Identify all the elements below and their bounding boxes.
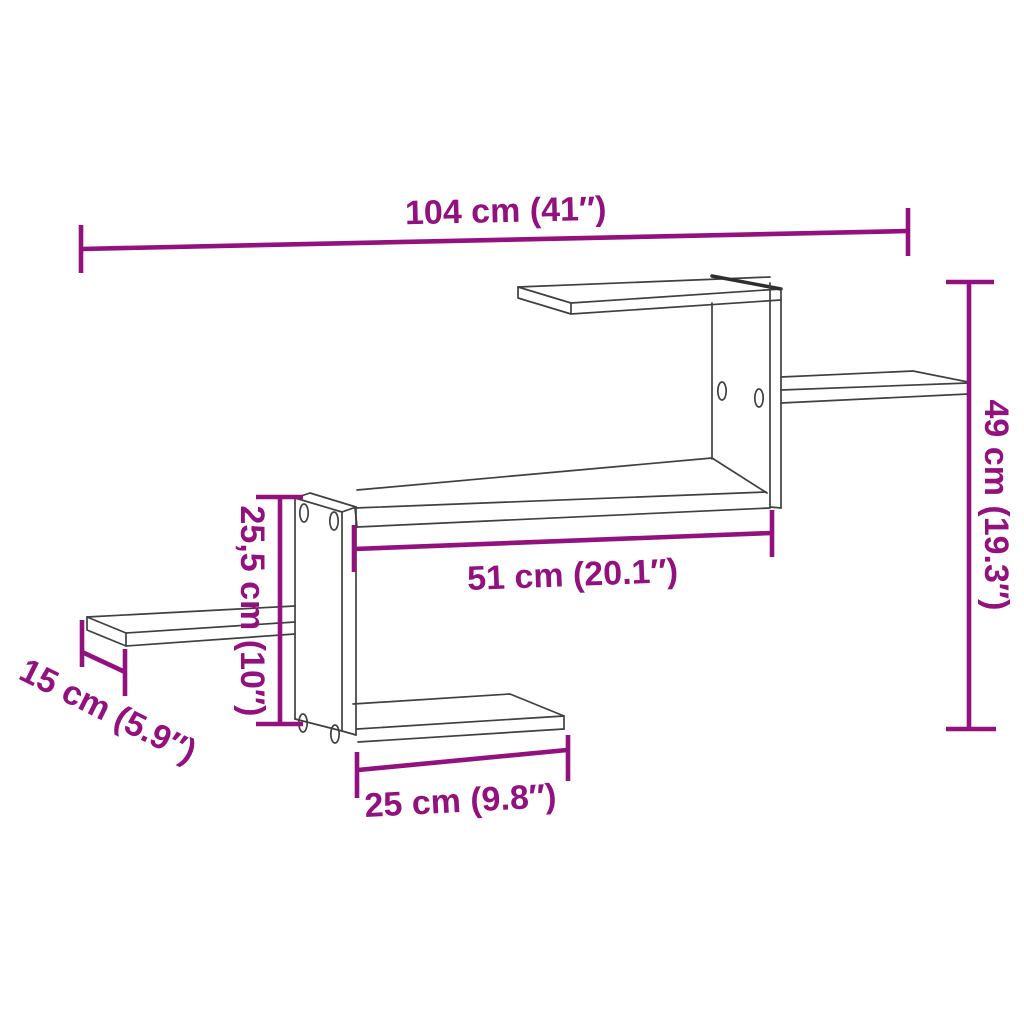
shelf-edge-line bbox=[358, 729, 564, 742]
dimension-label-main-shelf-width: 51 cm (20.1″) bbox=[466, 552, 678, 598]
shelf-edge-line bbox=[781, 394, 968, 403]
dimension-line bbox=[358, 750, 567, 770]
panel-edge-line bbox=[770, 507, 781, 508]
screw-hole bbox=[755, 389, 763, 407]
left-panel bbox=[295, 493, 356, 743]
middle-shelf bbox=[355, 458, 770, 527]
dimension-label-left-section-height: 25,5 cm (10″) bbox=[233, 506, 271, 717]
dimension-line bbox=[354, 533, 772, 549]
wall-shelf-drawing bbox=[87, 276, 968, 743]
dimension-total-height: 49 cm (19.3″) bbox=[946, 282, 1015, 729]
dimension-left-section-height: 25,5 cm (10″) bbox=[233, 497, 303, 724]
right-shelf bbox=[781, 371, 968, 403]
shelf-edge-line bbox=[353, 694, 564, 716]
bottom-shelf bbox=[353, 694, 564, 742]
screw-hole bbox=[330, 512, 338, 530]
wall-shelf-dimension-diagram: 104 cm (41″) 49 cm (19.3″) 25,5 cm (10″)… bbox=[0, 0, 1024, 1024]
dimension-bottom-shelf-width: 25 cm (9.8″) bbox=[357, 735, 568, 825]
shelf-edge-line bbox=[781, 383, 968, 390]
shelf-edge-line bbox=[355, 492, 766, 508]
shelf-edge-line bbox=[518, 287, 781, 303]
top-shelf bbox=[518, 276, 781, 314]
diagram-canvas: 104 cm (41″) 49 cm (19.3″) 25,5 cm (10″)… bbox=[0, 0, 1024, 1024]
shelf-edge-line bbox=[357, 508, 770, 527]
screw-hole bbox=[300, 504, 308, 522]
dimension-line bbox=[82, 652, 125, 672]
dimension-label-total-height: 49 cm (19.3″) bbox=[977, 400, 1015, 611]
right-panel bbox=[712, 283, 781, 508]
dimension-label-bottom-shelf-width: 25 cm (9.8″) bbox=[364, 777, 558, 825]
dimension-annotations: 104 cm (41″) 49 cm (19.3″) 25,5 cm (10″)… bbox=[13, 190, 1015, 825]
screw-hole bbox=[331, 725, 339, 743]
dimension-label-total-width: 104 cm (41″) bbox=[405, 190, 607, 233]
shelf-edge-line bbox=[357, 716, 564, 729]
shelf-edge-line bbox=[357, 458, 767, 493]
dimension-label-side-shelf-depth: 15 cm (5.9″) bbox=[13, 651, 202, 771]
shelf-edge-line bbox=[781, 371, 968, 382]
dimension-main-shelf-width: 51 cm (20.1″) bbox=[354, 510, 772, 598]
dimension-line bbox=[81, 231, 908, 249]
screw-hole bbox=[718, 382, 726, 400]
dimension-total-width: 104 cm (41″) bbox=[81, 190, 908, 273]
